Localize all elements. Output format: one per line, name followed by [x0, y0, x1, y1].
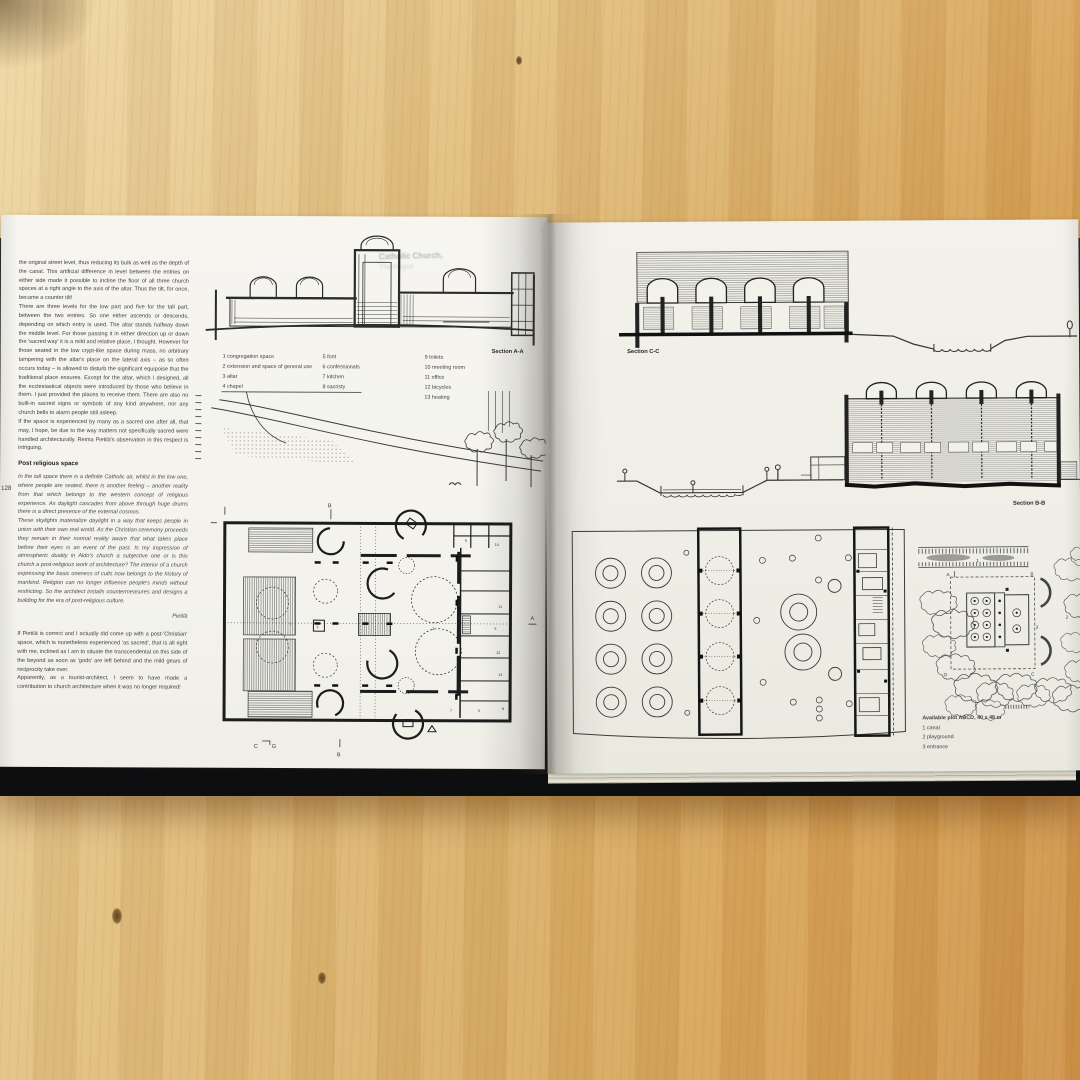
legend-item: 1 congregation space — [223, 352, 313, 362]
room-number: 10 — [495, 543, 499, 547]
plot-caption-item: 1 canal — [922, 724, 1001, 734]
room-number: 2 — [432, 627, 434, 631]
page-number: 128 — [1, 485, 11, 492]
plan-marker-b-top: B — [328, 503, 332, 509]
plan-marker-c: C — [254, 744, 258, 750]
legend-item: 3 altar — [222, 372, 312, 382]
canal-sketch-drawing — [191, 388, 546, 499]
wood-knot — [516, 56, 522, 65]
site-marker-c: C — [1031, 672, 1035, 677]
room-number: 12 — [496, 651, 500, 655]
right-page: Section C-C — [544, 219, 1080, 773]
legend-column-1: 1 congregation space 2 extension and spa… — [222, 352, 312, 392]
church-floor-plan-drawing: B B A G C 1 2 3 9 10 11 5 12 13 7 6 8 — [210, 494, 544, 762]
room-number: 9 — [465, 539, 467, 543]
plot-caption-item: 3 entrance — [923, 743, 1002, 753]
quote-paragraph: In the tall space there is a definite Ca… — [18, 473, 188, 518]
site-marker-a: A — [946, 572, 949, 577]
section-cc-drawing — [616, 241, 1079, 351]
site-marker-b: B — [1030, 572, 1033, 577]
legend-item: 7 kitchen — [322, 372, 359, 382]
section-bb-label: Section B-B — [1013, 501, 1045, 507]
wood-knot — [318, 972, 326, 984]
body-text-column: the original street level, thus reducing… — [17, 259, 189, 693]
legend-item: 9 toilets — [425, 353, 465, 363]
room-number: 13 — [498, 673, 502, 677]
site-number-1: 1 — [976, 558, 979, 563]
section-cc-label: Section C-C — [627, 349, 659, 355]
plan-marker-a: A — [530, 616, 534, 622]
paragraph: If the space is experienced by many as a… — [18, 418, 188, 454]
site-number-2: 2 — [1066, 614, 1069, 619]
site-marker-d: D — [944, 672, 948, 677]
plot-caption-item: 2 playground — [922, 733, 1001, 743]
paragraph: Apparently, as a tourist-architect, I se… — [17, 674, 187, 692]
room-number: 1 — [289, 622, 291, 626]
photo-of-open-book: { "book": { "left_page": { "page_number"… — [0, 0, 1080, 1080]
site-number-3: 3 — [1036, 625, 1039, 630]
legend-item: 2 extension and space of general use — [223, 362, 313, 372]
legend-item: 10 meeting room — [425, 363, 465, 373]
paragraph: There are three levels for the low part … — [18, 303, 188, 419]
roof-plan-drawing — [566, 519, 913, 753]
room-number: 8 — [502, 707, 504, 711]
room-number: 3 — [316, 625, 318, 629]
room-number: 11 — [498, 605, 502, 609]
plan-marker-g: G — [272, 744, 276, 750]
plot-caption: Available plot ABCD, 40 x 48 m 1 canal 2… — [922, 714, 1001, 753]
plan-marker-b-bottom: B — [337, 752, 341, 758]
quote-paragraph: These skylights materialize daylight in … — [18, 517, 188, 606]
legend-column-2: 5 font 6 confessionals 7 kitchen 8 sacri… — [322, 352, 359, 392]
section-bb-drawing — [614, 383, 1080, 504]
section-heading: Post religious space — [18, 459, 188, 470]
site-plan-drawing: A B C D 1 2 3 — [916, 536, 1080, 713]
quote-attribution: Pietilä — [17, 612, 187, 622]
room-number: 7 — [450, 709, 452, 713]
left-page: 128 Catholic Church, The Hague the origi… — [0, 215, 547, 769]
plot-caption-title: Available plot ABCD, 40 x 48 m — [922, 714, 1001, 724]
paragraph: If Pietilä is correct and I actually did… — [17, 630, 187, 675]
legend-item: 6 confessionals — [323, 362, 360, 372]
legend-item: 5 font — [323, 352, 360, 362]
section-aa-label: Section A-A — [492, 349, 524, 355]
room-number: 5 — [494, 627, 496, 631]
section-aa-drawing — [204, 229, 537, 348]
room-number: 6 — [478, 709, 480, 713]
paragraph: the original street level, thus reducing… — [19, 259, 189, 304]
legend-item: 11 office — [424, 373, 464, 383]
wood-knot — [112, 908, 122, 924]
